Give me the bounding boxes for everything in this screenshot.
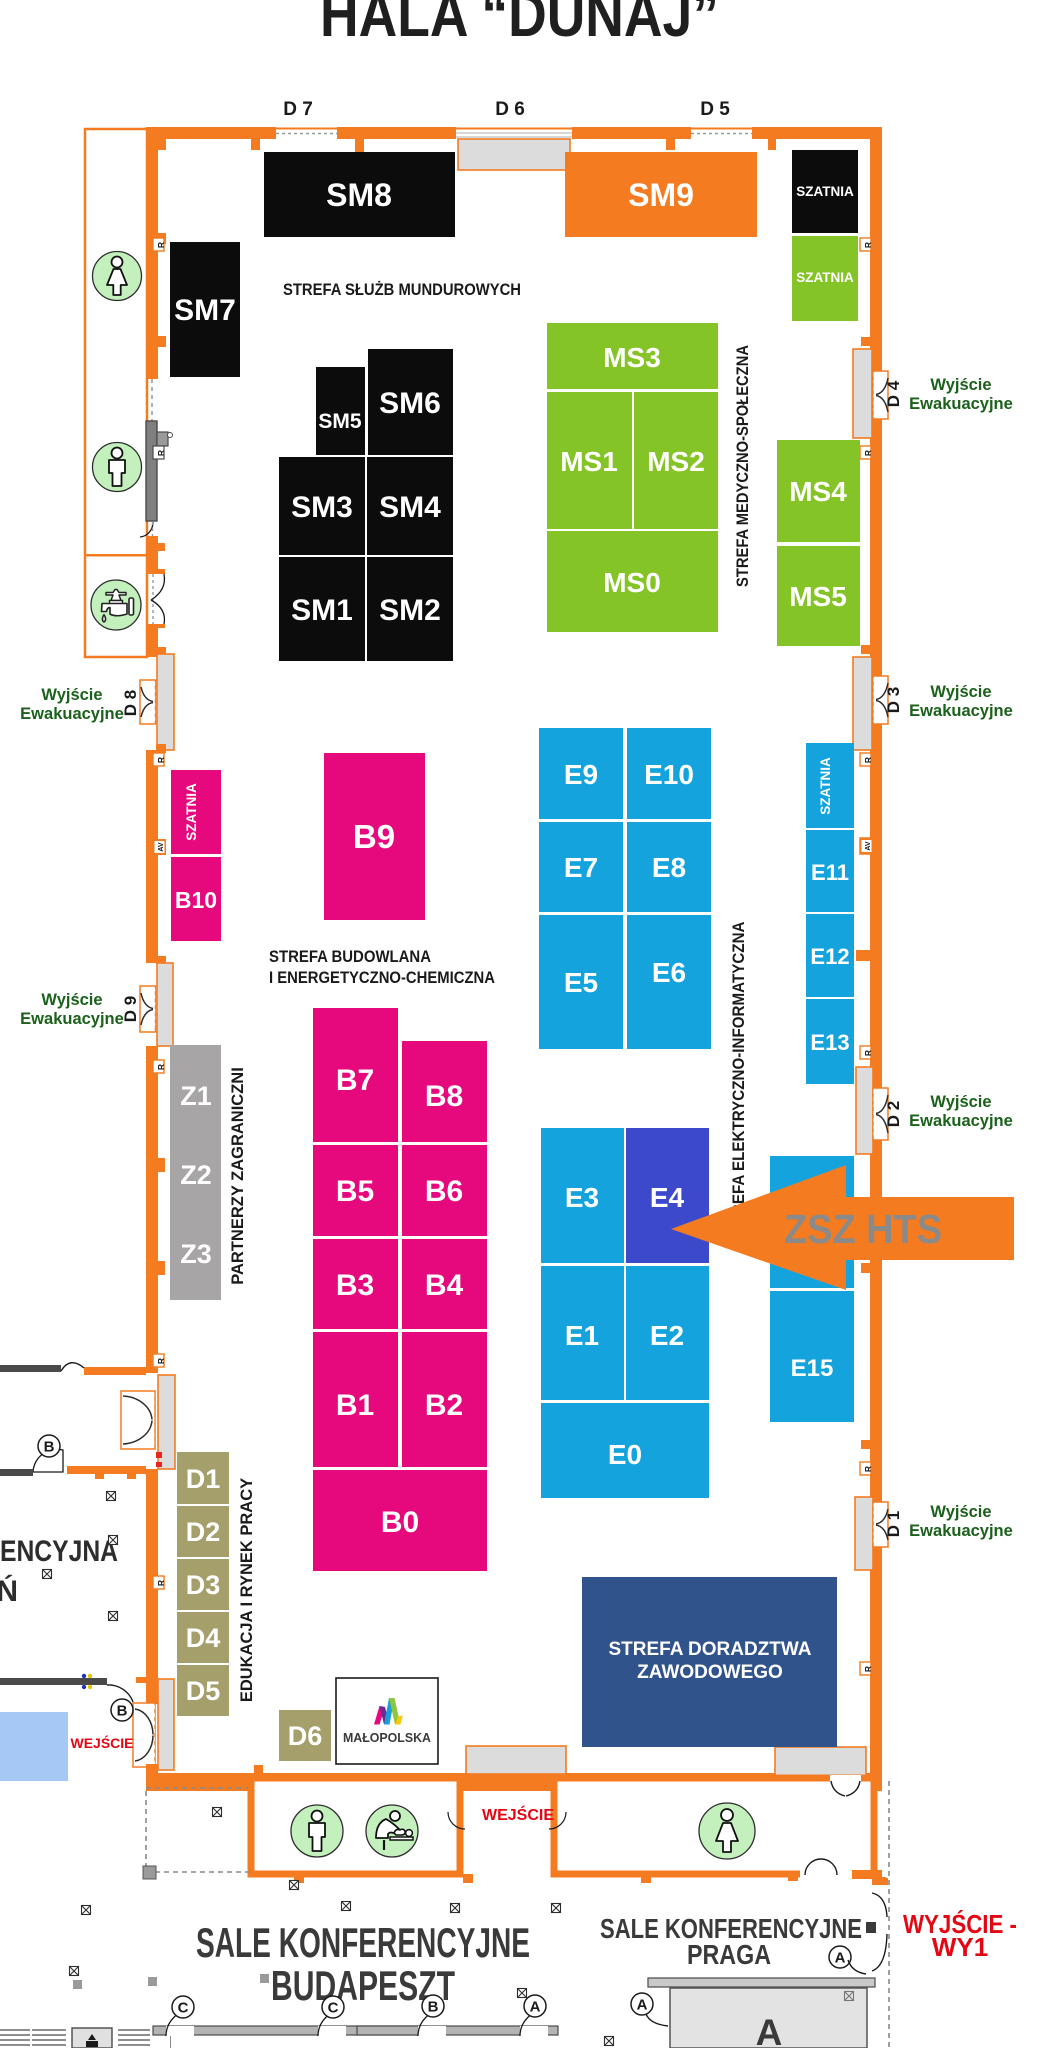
svg-text:D 9: D 9 [121,996,140,1022]
svg-text:D 1: D 1 [884,1511,903,1537]
svg-text:Wyjście: Wyjście [41,991,102,1009]
svg-text:WY1: WY1 [932,1932,988,1962]
svg-text:D1: D1 [186,1464,221,1494]
svg-text:SZATNIA: SZATNIA [796,184,854,199]
svg-text:SM9: SM9 [628,177,694,213]
svg-text:E3: E3 [565,1182,599,1213]
svg-text:SZATNIA: SZATNIA [818,757,833,815]
svg-text:B7: B7 [336,1064,374,1097]
svg-text:Z3: Z3 [180,1239,212,1269]
svg-text:STREFA SŁUŻB MUNDUROWYCH: STREFA SŁUŻB MUNDUROWYCH [283,281,521,299]
svg-text:B9: B9 [353,818,395,855]
svg-text:R: R [863,1666,873,1672]
svg-text:STREFA DORADZTWA: STREFA DORADZTWA [608,1639,811,1660]
svg-text:R: R [863,1050,873,1056]
svg-text:SZATNIA: SZATNIA [184,783,199,841]
svg-text:WEJŚCIE: WEJŚCIE [482,1805,554,1824]
svg-text:B: B [44,1439,55,1456]
svg-text:R: R [156,242,166,248]
svg-text:MAŁOPOLSKA: MAŁOPOLSKA [343,1731,431,1745]
svg-text:B8: B8 [425,1080,463,1113]
svg-text:STREFA BUDOWLANA: STREFA BUDOWLANA [269,948,431,966]
svg-text:Ewakuacyjne: Ewakuacyjne [20,705,124,723]
svg-text:Ewakuacyjne: Ewakuacyjne [909,702,1013,720]
svg-text:E9: E9 [564,759,598,790]
svg-text:Ewakuacyjne: Ewakuacyjne [909,1522,1013,1540]
svg-text:B3: B3 [336,1269,374,1302]
svg-text:A: A [637,1997,648,2014]
svg-text:STREFA ELEKTRYCZNO-INFORMATYCZ: STREFA ELEKTRYCZNO-INFORMATYCZNA [730,921,748,1234]
svg-text:MS3: MS3 [603,342,661,373]
svg-text:PARTNERZY ZAGRANICZNI: PARTNERZY ZAGRANICZNI [229,1067,247,1285]
svg-text:D3: D3 [186,1570,221,1600]
svg-text:ENCYJNA: ENCYJNA [0,1535,118,1568]
svg-text:SM3: SM3 [291,491,353,524]
svg-text:D5: D5 [186,1676,221,1706]
svg-text:E7: E7 [564,852,598,883]
svg-text:WEJŚCIE: WEJŚCIE [70,1734,133,1751]
svg-text:ZAWODOWEGO: ZAWODOWEGO [637,1662,783,1683]
svg-text:SM8: SM8 [326,177,392,213]
svg-text:D 2: D 2 [884,1101,903,1127]
svg-text:SM7: SM7 [174,294,236,327]
svg-text:B0: B0 [381,1506,419,1539]
svg-text:Wyjście: Wyjście [930,683,991,701]
svg-text:C: C [328,2000,339,2017]
svg-text:B1: B1 [336,1389,374,1422]
svg-text:D 6: D 6 [495,99,525,120]
svg-text:A: A [756,2012,783,2048]
svg-text:E11: E11 [811,860,849,885]
svg-text:SM6: SM6 [379,387,441,420]
svg-text:R: R [156,1064,166,1070]
svg-text:R: R [156,757,166,763]
svg-text:MS1: MS1 [560,446,618,477]
svg-text:R: R [156,1358,166,1364]
svg-text:AV: AV [158,842,165,852]
svg-text:R: R [863,1466,873,1472]
svg-text:B: B [428,1999,439,2016]
svg-text:D 4: D 4 [884,380,903,407]
svg-text:Wyjście: Wyjście [930,376,991,394]
svg-text:E13: E13 [810,1030,849,1055]
svg-text:E0: E0 [608,1439,642,1470]
svg-text:D 7: D 7 [283,99,313,120]
svg-text:B10: B10 [175,887,217,913]
svg-text:EDUKACJA I RYNEK PRACY: EDUKACJA I RYNEK PRACY [238,1478,256,1702]
svg-text:I ENERGETYCZNO-CHEMICZNA: I ENERGETYCZNO-CHEMICZNA [269,969,495,987]
svg-text:SM5: SM5 [318,410,362,433]
svg-text:Wyjście: Wyjście [41,686,102,704]
svg-text:Ewakuacyjne: Ewakuacyjne [909,395,1013,413]
svg-text:E10: E10 [644,759,694,790]
svg-text:R: R [863,757,873,763]
svg-text:E15: E15 [791,1355,834,1382]
svg-text:SZATNIA: SZATNIA [796,270,854,285]
svg-text:B2: B2 [425,1389,463,1422]
svg-text:HALA “DUNAJ”: HALA “DUNAJ” [320,0,719,50]
svg-text:Ewakuacyjne: Ewakuacyjne [20,1010,124,1028]
svg-text:Z1: Z1 [180,1081,212,1111]
svg-text:R: R [863,450,873,456]
svg-text:B4: B4 [425,1269,464,1302]
svg-text:E12: E12 [810,944,849,969]
svg-text:D 8: D 8 [121,690,140,716]
svg-text:MS2: MS2 [647,446,705,477]
svg-text:E4: E4 [650,1182,685,1213]
svg-text:MS4: MS4 [789,476,847,507]
svg-text:E8: E8 [652,852,686,883]
svg-text:SM2: SM2 [379,594,441,627]
svg-text:C: C [178,2000,189,2017]
svg-text:E1: E1 [565,1320,599,1351]
svg-text:SM1: SM1 [291,594,353,627]
svg-text:D4: D4 [186,1623,221,1653]
svg-text:A: A [835,1950,846,1967]
svg-text:Ewakuacyjne: Ewakuacyjne [909,1112,1013,1130]
svg-text:D 3: D 3 [884,687,903,713]
svg-text:MS5: MS5 [789,581,847,612]
svg-text:D 5: D 5 [700,99,730,120]
svg-text:B6: B6 [425,1175,463,1208]
svg-text:R: R [156,1580,166,1586]
svg-text:E5: E5 [564,967,598,998]
svg-text:Ń: Ń [0,1574,18,1608]
svg-text:SALE KONFERENCYJNE: SALE KONFERENCYJNE [196,1919,530,1966]
svg-text:E6: E6 [652,957,686,988]
svg-text:E2: E2 [650,1320,684,1351]
svg-text:R: R [156,450,166,456]
svg-text:AV: AV [865,841,872,851]
svg-text:B: B [117,1703,128,1720]
svg-text:SM4: SM4 [379,491,441,524]
svg-text:Wyjście: Wyjście [930,1503,991,1521]
svg-text:MS0: MS0 [603,567,661,598]
svg-text:Z2: Z2 [180,1160,212,1190]
svg-text:D2: D2 [186,1517,221,1547]
svg-text:D6: D6 [288,1721,323,1751]
svg-text:R: R [863,242,873,248]
svg-text:B5: B5 [336,1175,374,1208]
svg-text:STREFA MEDYCZNO-SPOŁECZNA: STREFA MEDYCZNO-SPOŁECZNA [734,345,752,587]
svg-text:ZSZ HTS: ZSZ HTS [784,1206,942,1252]
svg-text:PRAGA: PRAGA [687,1939,771,1970]
svg-text:Wyjście: Wyjście [930,1093,991,1111]
svg-text:A: A [530,1999,541,2016]
